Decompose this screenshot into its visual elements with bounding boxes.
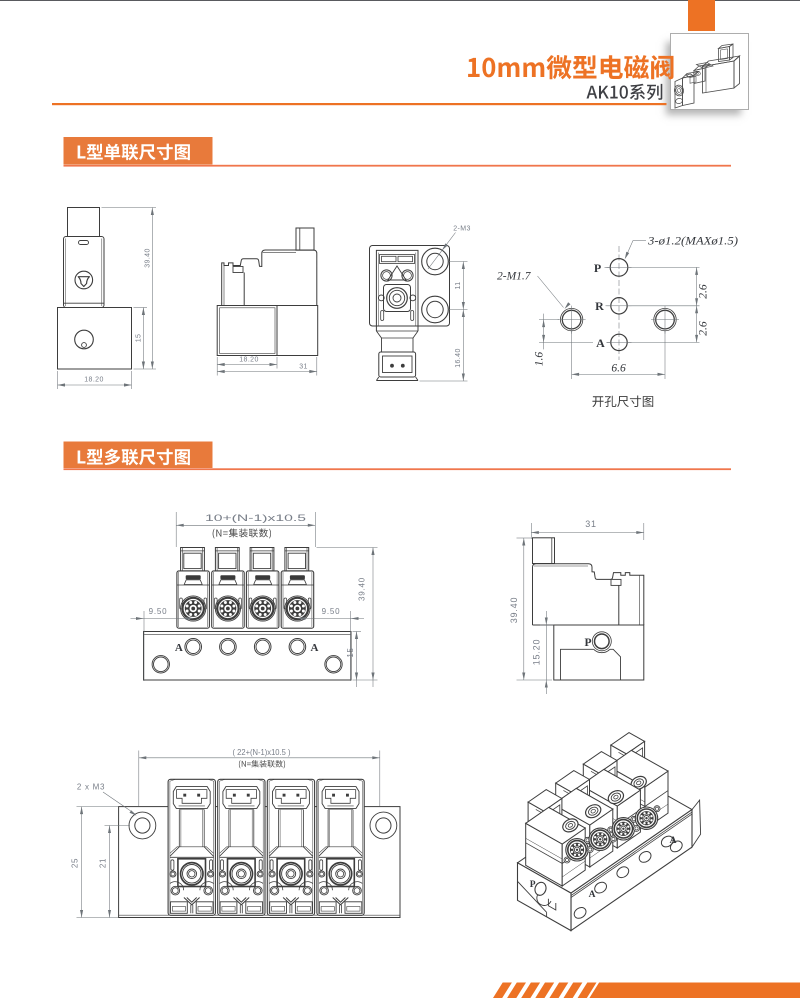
svg-text:A: A: [175, 642, 183, 654]
svg-text:18.20: 18.20: [84, 377, 104, 384]
svg-text:2-M3: 2-M3: [453, 226, 471, 233]
svg-text:15: 15: [346, 647, 355, 657]
svg-text:11: 11: [455, 281, 462, 289]
svg-text:A: A: [596, 336, 605, 350]
svg-text:15: 15: [135, 334, 142, 343]
svg-text:3-ø1.2(MAXø1.5): 3-ø1.2(MAXø1.5): [647, 236, 738, 248]
svg-text:25: 25: [71, 858, 80, 868]
svg-text:( 22+(N-1)x10.5 ): ( 22+(N-1)x10.5 ): [233, 747, 291, 757]
svg-text:31: 31: [299, 364, 308, 371]
svg-text:16.40: 16.40: [455, 348, 462, 368]
svg-text:A: A: [589, 890, 596, 900]
svg-text:9.50: 9.50: [149, 607, 168, 616]
svg-text:2-M1.7: 2-M1.7: [497, 271, 532, 283]
svg-text:R: R: [595, 299, 604, 313]
svg-text:2.6: 2.6: [698, 284, 710, 299]
svg-text:1.6: 1.6: [534, 352, 546, 367]
svg-text:A: A: [670, 836, 677, 846]
svg-text:A: A: [311, 642, 319, 654]
svg-text:9.50: 9.50: [322, 607, 341, 616]
svg-text:P: P: [530, 880, 536, 890]
svg-text:39.40: 39.40: [144, 248, 151, 268]
svg-text:P: P: [594, 261, 601, 275]
svg-text:39.40: 39.40: [509, 597, 519, 624]
svg-text:31: 31: [585, 519, 597, 529]
svg-text:15.20: 15.20: [532, 639, 542, 666]
svg-text:2.6: 2.6: [698, 321, 710, 336]
svg-text:10+(N-1)x10.5: 10+(N-1)x10.5: [205, 513, 306, 523]
svg-text:6.6: 6.6: [611, 363, 626, 375]
svg-text:21: 21: [99, 858, 108, 868]
svg-text:2 x M3: 2 x M3: [77, 783, 105, 792]
svg-text:P: P: [584, 637, 591, 649]
svg-text:18.20: 18.20: [239, 357, 259, 364]
svg-text:39.40: 39.40: [358, 577, 367, 601]
